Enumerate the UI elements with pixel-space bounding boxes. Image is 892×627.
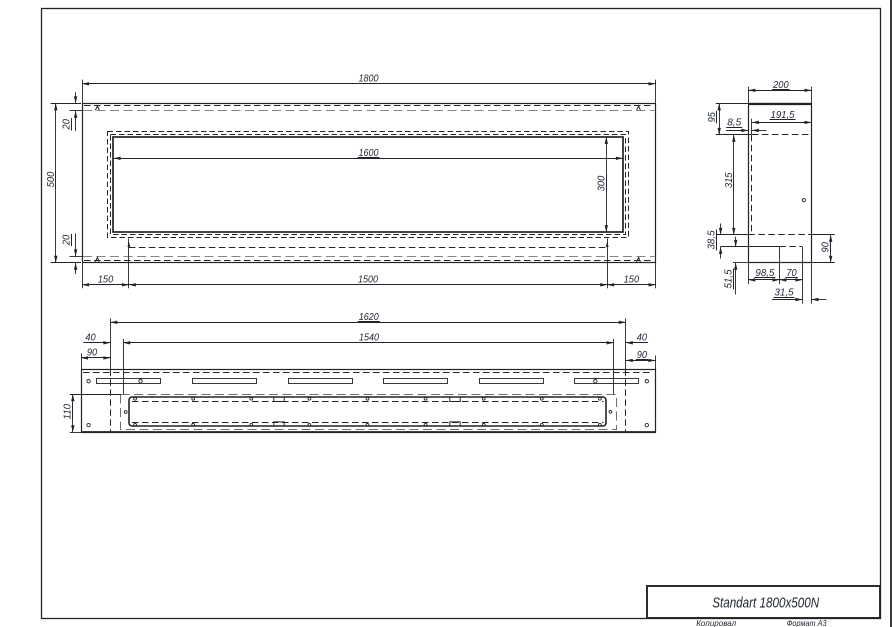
svg-text:110: 110 [61,404,73,420]
svg-text:1500: 1500 [358,273,378,285]
svg-text:1800: 1800 [359,72,379,84]
svg-text:90: 90 [87,347,97,359]
svg-text:Standart 1800x500N: Standart 1800x500N [712,595,819,612]
svg-text:Формат А3: Формат А3 [787,618,827,627]
svg-text:20: 20 [60,119,72,130]
svg-text:150: 150 [98,273,114,285]
svg-text:40: 40 [85,331,95,343]
svg-text:300: 300 [595,176,607,192]
svg-text:51,5: 51,5 [722,269,734,288]
svg-text:150: 150 [624,273,640,285]
svg-text:20: 20 [60,235,72,246]
svg-text:40: 40 [637,331,647,343]
svg-text:8,5: 8,5 [727,116,741,128]
svg-text:31,5: 31,5 [775,286,794,298]
svg-text:1540: 1540 [359,331,379,343]
svg-text:90: 90 [820,242,832,252]
svg-text:Копировал: Копировал [696,618,736,627]
svg-text:38,5: 38,5 [705,230,717,249]
